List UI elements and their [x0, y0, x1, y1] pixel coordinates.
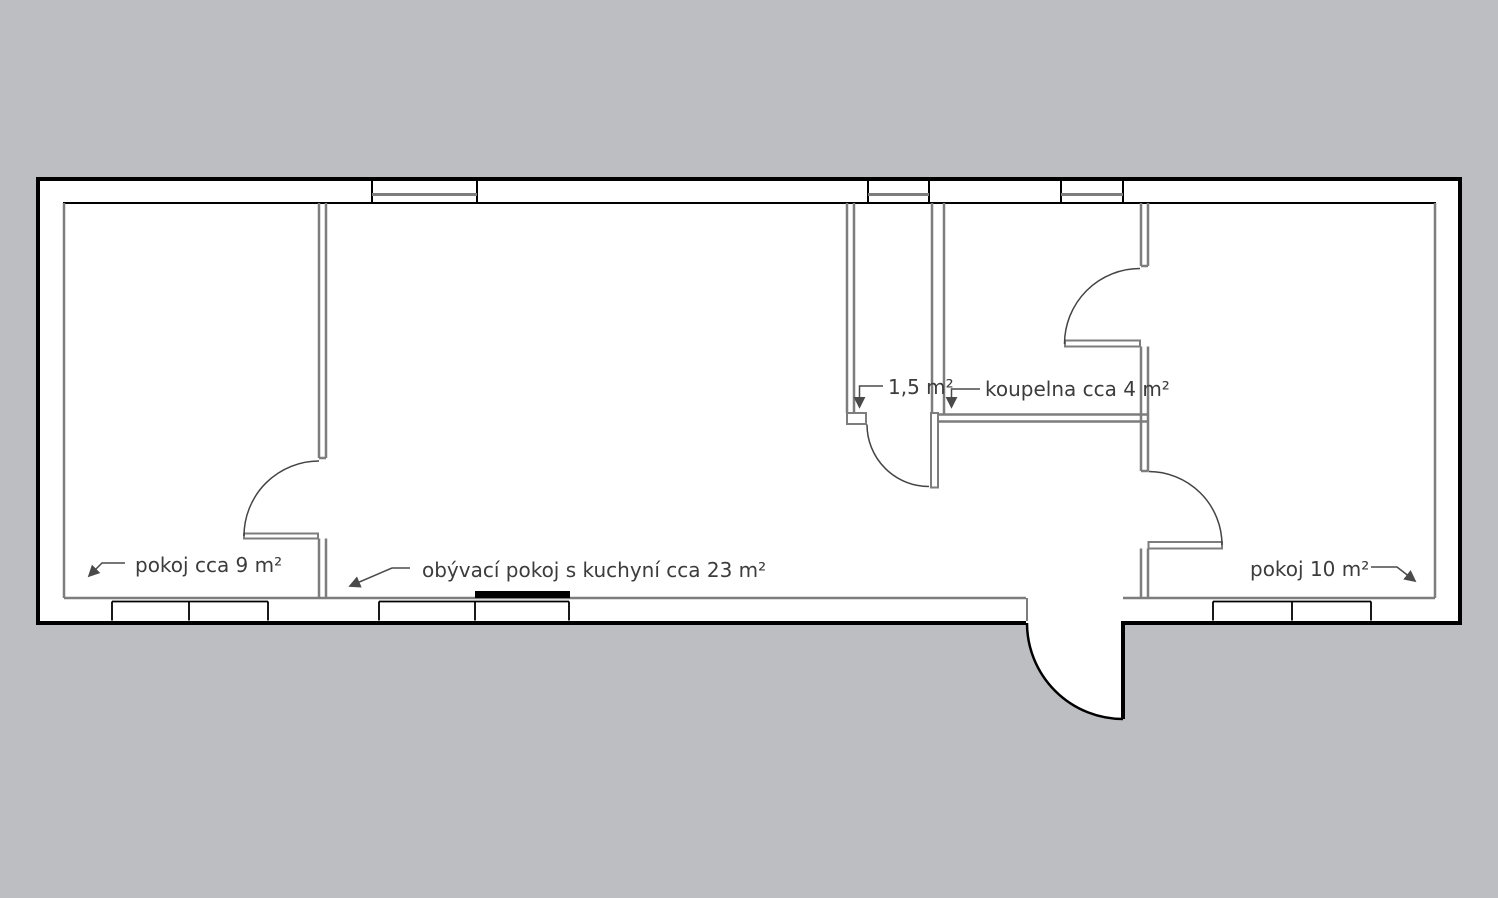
room-label-text: pokoj cca 9 m²	[135, 553, 282, 577]
room-label-text: koupelna cca 4 m²	[985, 377, 1170, 401]
floor-plan-page: pokoj cca 9 m² obývací pokoj s kuchyní c…	[0, 0, 1498, 898]
kitchen-counter-bar	[475, 591, 570, 598]
room9-door-leaf	[244, 534, 318, 539]
wc-door-jamb	[847, 413, 866, 424]
wall-wc-stub	[931, 413, 938, 488]
room10-door-leaf	[1149, 542, 1223, 549]
room-label-text: pokoj 10 m²	[1250, 557, 1369, 581]
floor-plan-canvas: pokoj cca 9 m² obývací pokoj s kuchyní c…	[0, 0, 1498, 898]
room-label-text: obývací pokoj s kuchyní cca 23 m²	[422, 558, 766, 582]
bathroom-door-leaf	[1065, 341, 1140, 347]
room-label-text: 1,5 m²	[888, 375, 954, 399]
